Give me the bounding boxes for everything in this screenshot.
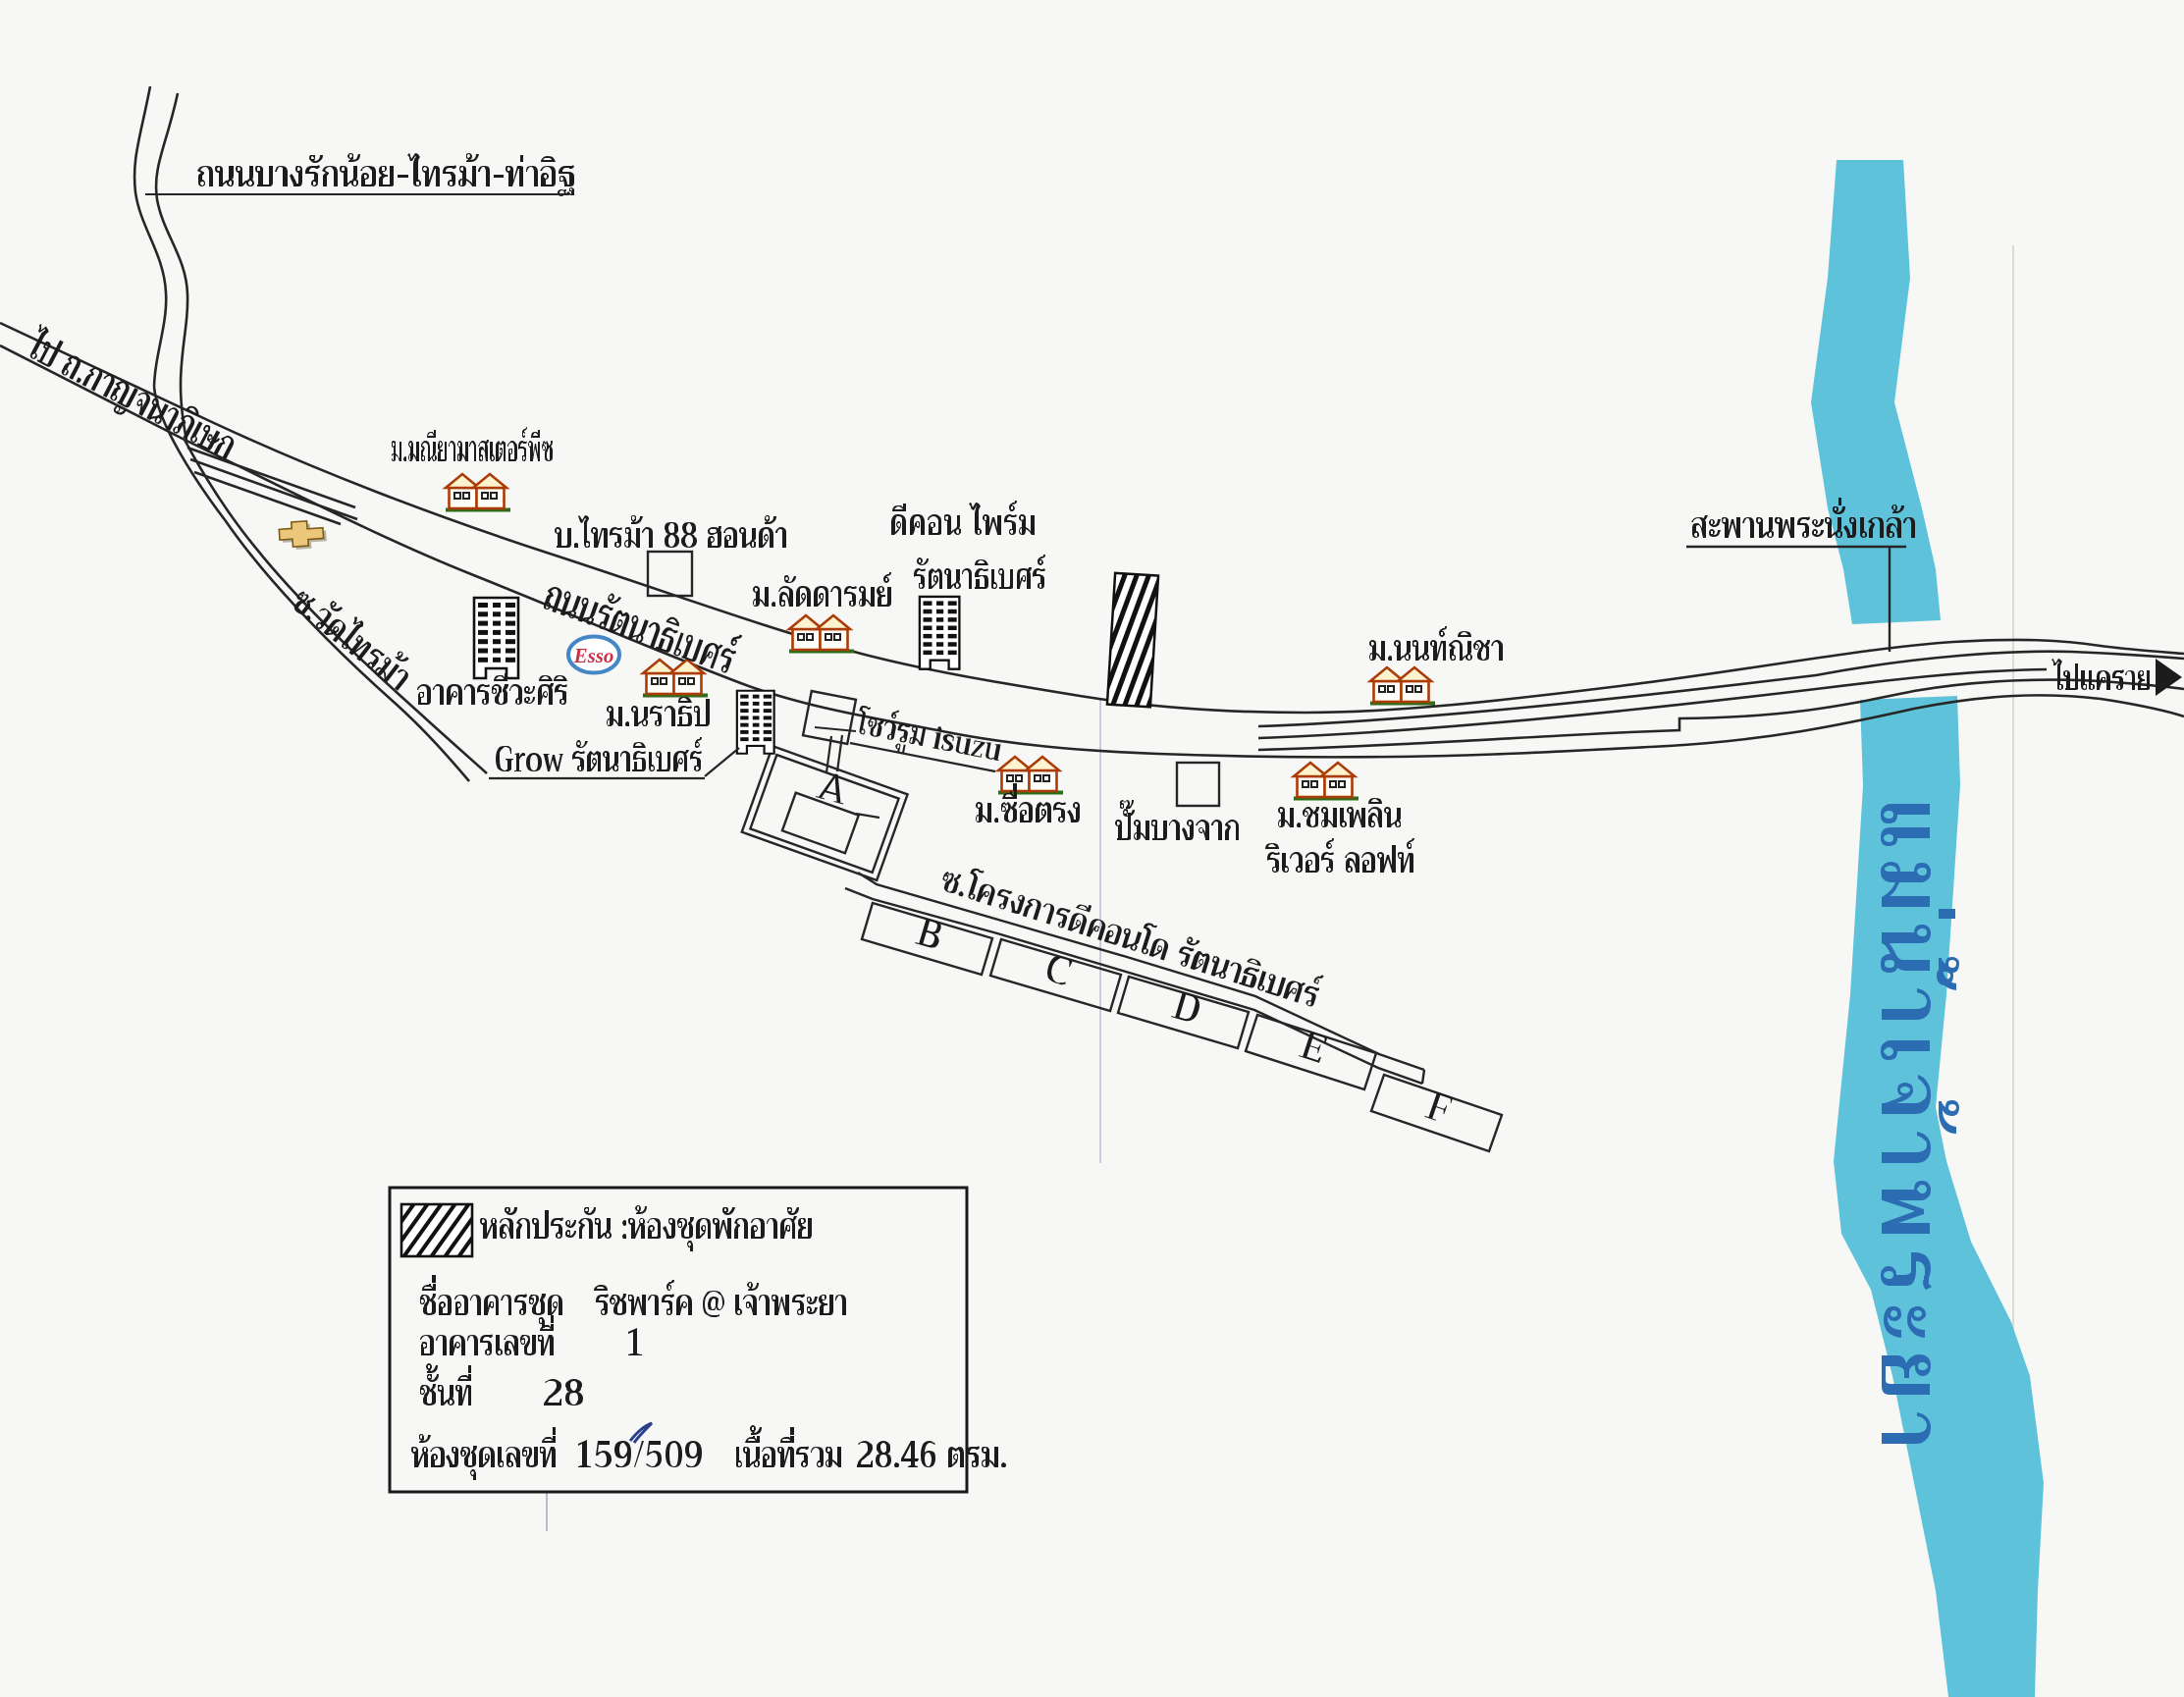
svg-text:Esso: Esso	[573, 644, 614, 667]
